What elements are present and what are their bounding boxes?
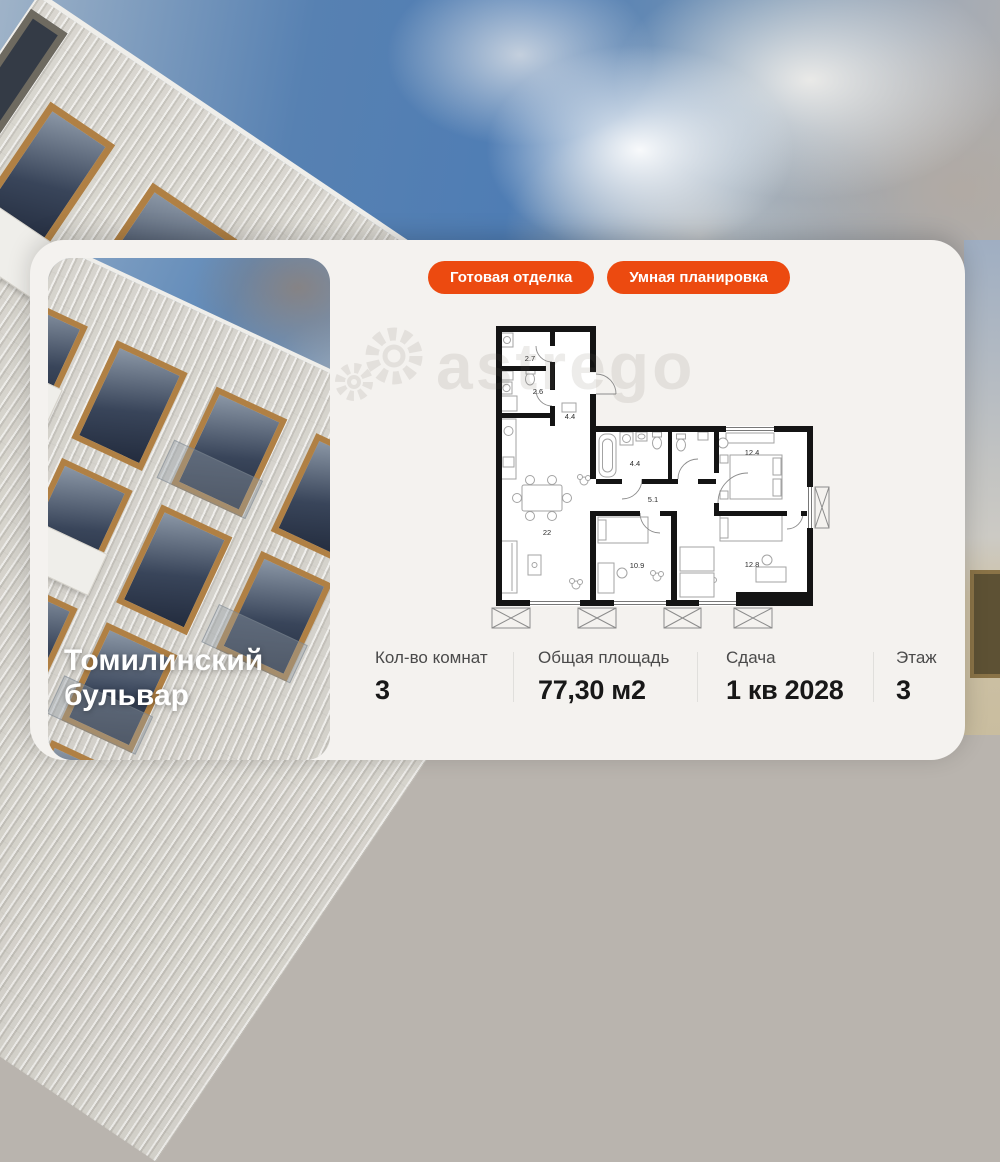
stat-divider (513, 652, 514, 702)
listing-card: Томилинский бульвар Готовая отделка Умна… (30, 240, 965, 760)
room-label-corridor: 5.1 (648, 495, 658, 504)
stat-divider (873, 652, 874, 702)
photo-card[interactable]: Томилинский бульвар (48, 258, 330, 760)
room-label-kitchen-living: 22 (543, 528, 551, 537)
stat-label: Кол-во комнат (375, 648, 488, 668)
stat-value: 3 (896, 675, 937, 706)
stat-rooms: Кол-во комнат 3 (375, 648, 488, 706)
stat-divider (697, 652, 698, 702)
room-label-bathroom: 4.4 (630, 459, 640, 468)
stat-value: 77,30 м2 (538, 675, 669, 706)
stat-value: 3 (375, 675, 488, 706)
room-label-storage: 2.7 (525, 354, 535, 363)
badge-row: Готовая отделка Умная планировка (428, 261, 790, 294)
stat-label: Этаж (896, 648, 937, 668)
badge-finish[interactable]: Готовая отделка (428, 261, 594, 294)
listing-title: Томилинский бульвар (64, 643, 312, 714)
floorplan-image[interactable]: 2.7 2.6 4.4 4.4 5.1 12.4 22 10.9 12.8 (470, 315, 830, 650)
bg-right-building (964, 240, 1000, 735)
stat-floor: Этаж 3 (896, 648, 937, 706)
stat-total-area: Общая площадь 77,30 м2 (538, 648, 669, 706)
room-label-bedroom-1: 12.4 (745, 448, 760, 457)
stat-label: Общая площадь (538, 648, 669, 668)
room-label-bathroom-small: 2.6 (533, 387, 543, 396)
room-label-hallway: 4.4 (565, 412, 575, 421)
stat-label: Сдача (726, 648, 844, 668)
room-label-bedroom-2: 10.9 (630, 561, 645, 570)
stat-completion: Сдача 1 кв 2028 (726, 648, 844, 706)
facade-window (271, 433, 330, 564)
facade-window (970, 570, 1000, 678)
room-label-bedroom-3: 12.8 (745, 560, 760, 569)
stat-value: 1 кв 2028 (726, 675, 844, 706)
gear-icon (330, 326, 430, 406)
badge-smart-plan[interactable]: Умная планировка (607, 261, 790, 294)
